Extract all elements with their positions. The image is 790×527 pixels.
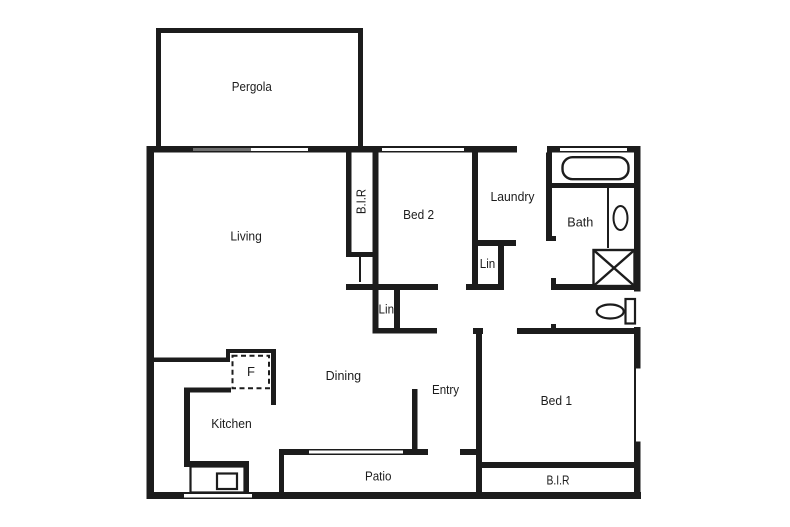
svg-text:Lin: Lin: [480, 256, 496, 271]
svg-text:Bath: Bath: [567, 215, 593, 230]
svg-text:Dining: Dining: [326, 368, 362, 383]
svg-text:Patio: Patio: [365, 469, 392, 484]
svg-text:Bed 1: Bed 1: [541, 393, 573, 408]
svg-text:Living: Living: [230, 229, 262, 244]
svg-text:Kitchen: Kitchen: [211, 416, 252, 431]
svg-text:Pergola: Pergola: [232, 79, 273, 94]
svg-text:Entry: Entry: [432, 382, 459, 397]
svg-text:B.I.R: B.I.R: [354, 189, 369, 214]
svg-text:Laundry: Laundry: [491, 189, 535, 204]
svg-text:F: F: [247, 364, 255, 379]
svg-text:Bed 2: Bed 2: [403, 207, 434, 222]
svg-text:Lin: Lin: [379, 301, 395, 316]
svg-text:B.I.R: B.I.R: [547, 473, 570, 488]
